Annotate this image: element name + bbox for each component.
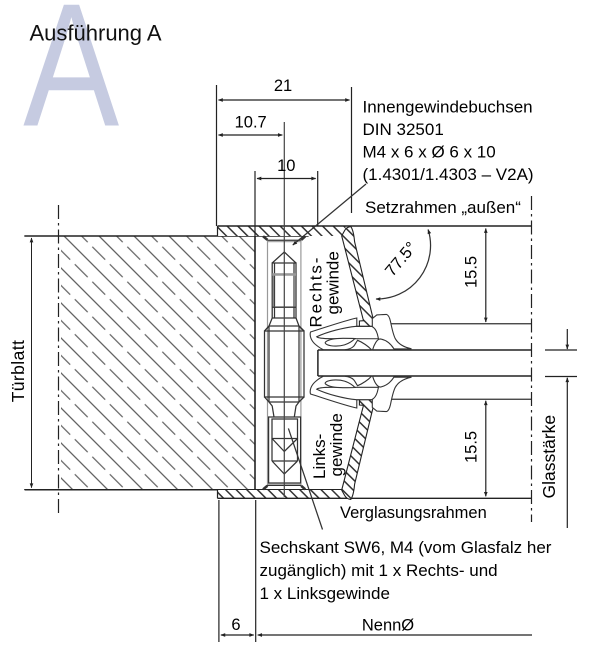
svg-text:1 x Linksgewinde: 1 x Linksgewinde: [260, 584, 390, 603]
svg-text:15.5: 15.5: [463, 431, 481, 463]
svg-text:NennØ: NennØ: [362, 617, 414, 635]
svg-text:15.5: 15.5: [463, 256, 481, 288]
svg-text:Links-: Links-: [310, 434, 329, 479]
svg-text:M4 x 6 x Ø 6 x 10: M4 x 6 x Ø 6 x 10: [363, 143, 496, 162]
svg-text:21: 21: [274, 77, 292, 95]
svg-text:gewinde: gewinde: [327, 413, 346, 476]
svg-text:Rechts-: Rechts-: [306, 256, 325, 328]
svg-text:10.7: 10.7: [235, 114, 267, 132]
svg-text:Verglasungsrahmen: Verglasungsrahmen: [340, 504, 487, 522]
svg-text:77.5°: 77.5°: [382, 239, 421, 280]
svg-text:(1.4301/1.4303 – V2A): (1.4301/1.4303 – V2A): [363, 165, 534, 184]
svg-text:Glasstärke: Glasstärke: [539, 415, 559, 499]
svg-text:Innengewindebuchsen: Innengewindebuchsen: [363, 98, 533, 117]
svg-text:Ausführung A: Ausführung A: [30, 21, 162, 46]
svg-text:Sechskant SW6, M4 (vom Glasfal: Sechskant SW6, M4 (vom Glasfalz her: [260, 538, 552, 557]
svg-text:zugänglich) mit 1 x Rechts- un: zugänglich) mit 1 x Rechts- und: [260, 561, 498, 580]
svg-text:6: 6: [231, 616, 240, 634]
svg-text:Türblatt: Türblatt: [8, 340, 28, 403]
svg-text:Setzrahmen „außen“: Setzrahmen „außen“: [365, 198, 521, 217]
svg-text:10: 10: [277, 157, 295, 175]
svg-text:DIN 32501: DIN 32501: [363, 120, 444, 139]
svg-text:gewinde: gewinde: [324, 251, 343, 314]
